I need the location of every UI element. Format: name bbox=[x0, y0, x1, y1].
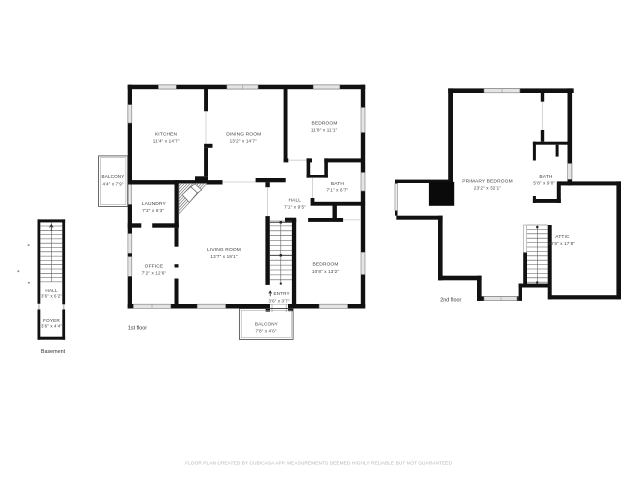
svg-text:BALCONY: BALCONY bbox=[101, 174, 124, 179]
svg-text:7’8" x 4’6": 7’8" x 4’6" bbox=[255, 328, 276, 333]
svg-text:10’9" x 17’8": 10’9" x 17’8" bbox=[548, 241, 575, 246]
svg-text:BEDROOM: BEDROOM bbox=[311, 120, 337, 126]
svg-text:FLOOR PLAN CREATED BY CUBICASA: FLOOR PLAN CREATED BY CUBICASA APP. MEAS… bbox=[185, 461, 452, 467]
svg-text:3’6" x 4’4": 3’6" x 4’4" bbox=[41, 324, 62, 329]
svg-text:7’1" x 6’7": 7’1" x 6’7" bbox=[326, 187, 348, 192]
svg-text:LIVING ROOM: LIVING ROOM bbox=[207, 247, 241, 253]
svg-text:10’8" x 13’2": 10’8" x 13’2" bbox=[312, 269, 339, 274]
svg-text:OFFICE: OFFICE bbox=[145, 263, 164, 269]
svg-text:ENTRY: ENTRY bbox=[273, 291, 289, 296]
svg-text:HALL: HALL bbox=[288, 198, 301, 204]
svg-text:BATH: BATH bbox=[539, 174, 553, 180]
svg-text:13’7" x 19’1": 13’7" x 19’1" bbox=[210, 254, 237, 259]
svg-text:ATTIC: ATTIC bbox=[555, 234, 570, 240]
svg-text:23’2" x 32’1": 23’2" x 32’1" bbox=[474, 186, 501, 191]
svg-text:KITCHEN: KITCHEN bbox=[155, 131, 178, 137]
svg-text:5’8" x 9’0": 5’8" x 9’0" bbox=[533, 180, 555, 185]
svg-text:4’4" x 7’9": 4’4" x 7’9" bbox=[102, 182, 123, 187]
svg-text:11’4" x 14’7": 11’4" x 14’7" bbox=[153, 139, 180, 144]
svg-text:7’1" x 9’5": 7’1" x 9’5" bbox=[284, 205, 306, 210]
svg-text:11’8" x 11’1": 11’8" x 11’1" bbox=[311, 128, 338, 133]
svg-text:2nd floor: 2nd floor bbox=[440, 298, 461, 304]
svg-text:BEDROOM: BEDROOM bbox=[312, 262, 338, 268]
svg-text:BATH: BATH bbox=[331, 181, 345, 187]
svg-text:FOYER: FOYER bbox=[43, 318, 60, 323]
svg-text:13’2" x 14’7": 13’2" x 14’7" bbox=[230, 139, 257, 144]
svg-text:7’2" x 12’6": 7’2" x 12’6" bbox=[142, 270, 167, 275]
svg-text:7’2" x 6’3": 7’2" x 6’3" bbox=[142, 208, 164, 213]
svg-text:BALCONY: BALCONY bbox=[255, 321, 278, 326]
svg-text:DINING ROOM: DINING ROOM bbox=[226, 131, 261, 137]
svg-text:PRIMARY BEDROOM: PRIMARY BEDROOM bbox=[462, 179, 513, 185]
svg-text:1st floor: 1st floor bbox=[128, 326, 147, 332]
svg-text:LAUNDRY: LAUNDRY bbox=[142, 201, 167, 207]
svg-text:3’6" x 6’2": 3’6" x 6’2" bbox=[41, 294, 62, 299]
svg-text:3’6" x 3’7": 3’6" x 3’7" bbox=[268, 298, 289, 303]
svg-text:Basement: Basement bbox=[41, 349, 66, 355]
svg-text:HALL: HALL bbox=[45, 288, 58, 293]
